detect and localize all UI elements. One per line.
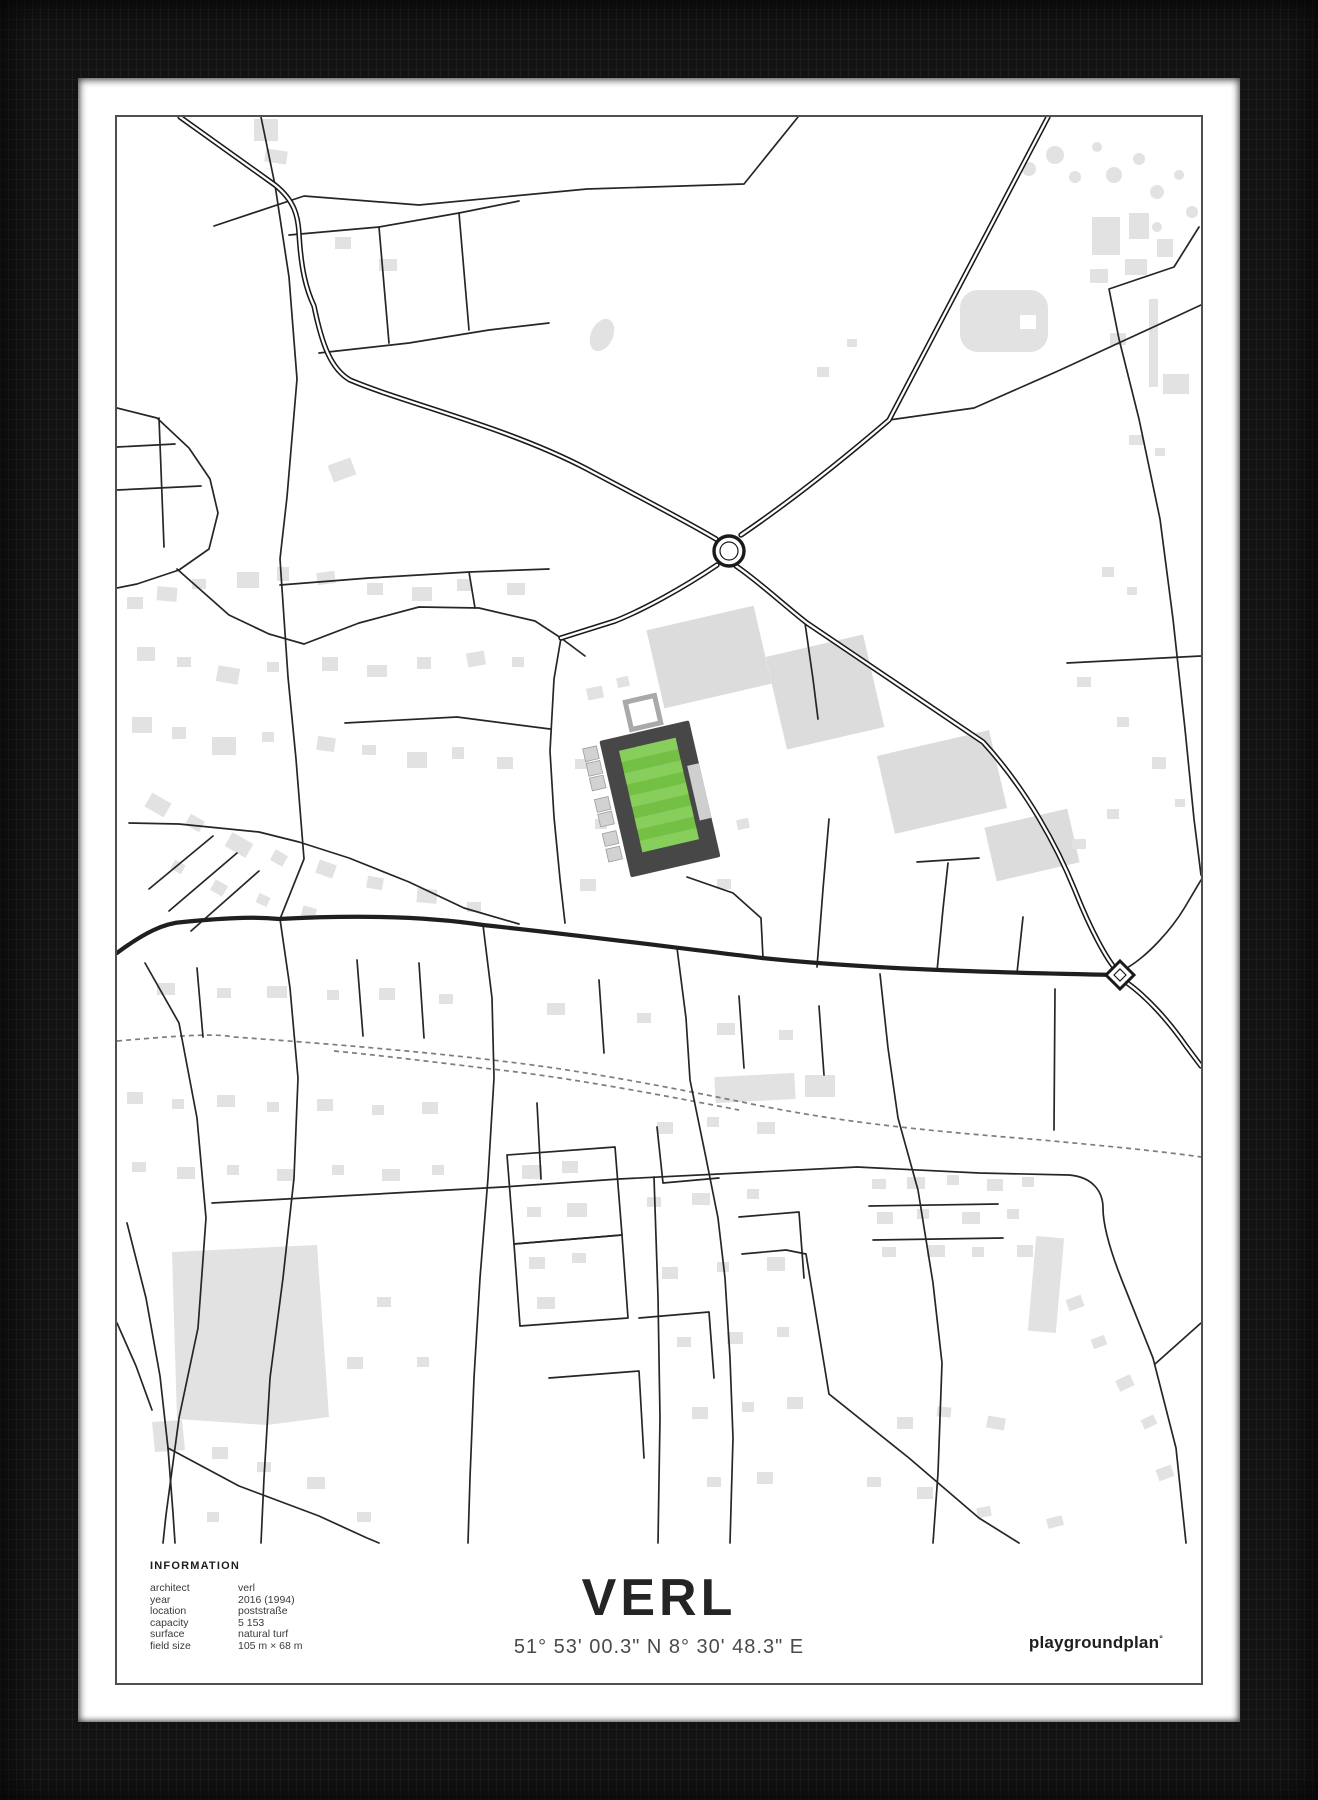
city-map-graphic <box>117 117 1201 1683</box>
framed-poster: INFORMATION architectverlyear2016 (1994)… <box>0 0 1318 1800</box>
poster-matte: INFORMATION architectverlyear2016 (1994)… <box>78 78 1240 1722</box>
map-border-box: INFORMATION architectverlyear2016 (1994)… <box>115 115 1203 1685</box>
roundabout-icon <box>714 536 744 566</box>
